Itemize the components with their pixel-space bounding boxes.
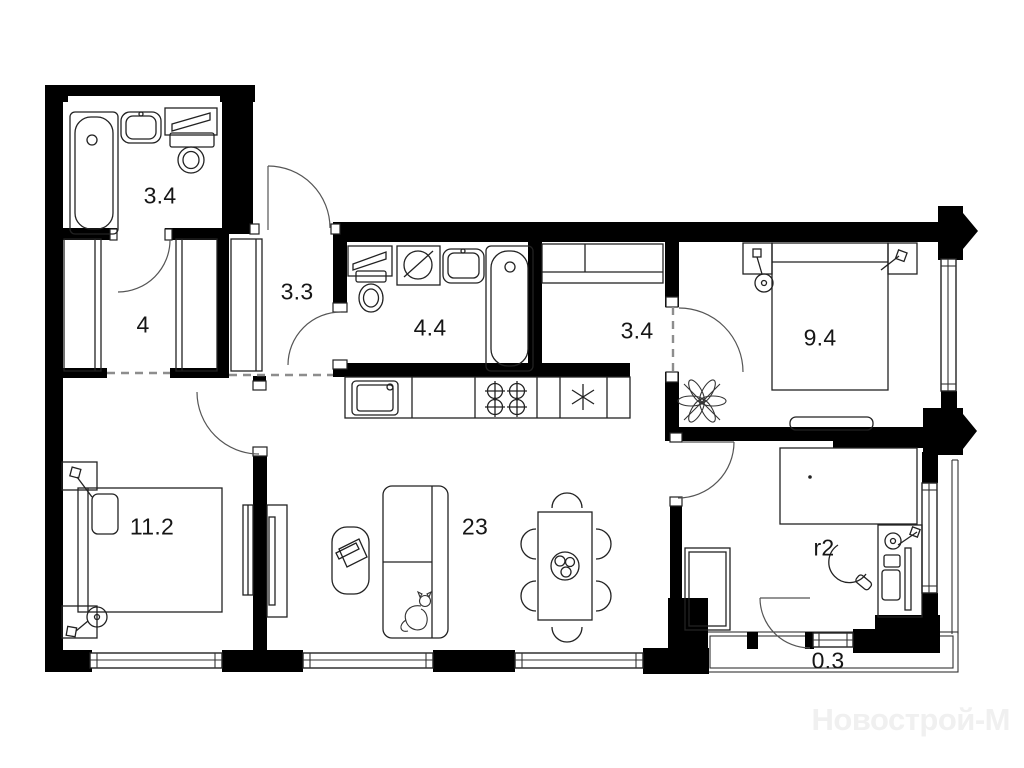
bathroom-2-fixtures bbox=[348, 246, 533, 371]
floor-plan-drawing bbox=[0, 0, 1024, 768]
fridge-snowflake-icon bbox=[572, 384, 594, 410]
floor-plan: 3.4 4 3.3 4.4 3.4 9.4 11.2 23 r2 0.3 Нов… bbox=[0, 0, 1024, 768]
room-label-bedroom-3: r2 bbox=[813, 535, 834, 562]
monitor bbox=[905, 548, 911, 610]
desk bbox=[878, 525, 922, 617]
room-label-balcony: 0.3 bbox=[812, 648, 845, 675]
corridor-closet bbox=[542, 244, 663, 283]
washing-machine bbox=[397, 246, 440, 285]
toilet bbox=[170, 133, 214, 173]
wall-lamp bbox=[753, 249, 773, 292]
room-label-bathroom-1: 3.4 bbox=[144, 183, 177, 210]
bed bbox=[78, 488, 222, 612]
window-bedroom-2 bbox=[90, 653, 222, 668]
nightstand bbox=[888, 243, 917, 274]
room-label-entry-hall: 3.3 bbox=[281, 279, 314, 306]
vent-niche bbox=[68, 96, 220, 105]
sink bbox=[121, 112, 161, 143]
window-bedroom-1 bbox=[941, 259, 956, 391]
dining-chair bbox=[521, 581, 536, 611]
dining-chair bbox=[596, 581, 611, 611]
room-label-bedroom-1: 9.4 bbox=[804, 325, 837, 352]
hall-wardrobe-left bbox=[64, 239, 101, 371]
door-bathroom-1 bbox=[118, 240, 170, 292]
window-bedroom-3 bbox=[922, 483, 937, 593]
door-balcony bbox=[760, 598, 810, 648]
window-living-2 bbox=[515, 653, 643, 668]
entry-door bbox=[268, 166, 330, 230]
bedroom-2-wardrobe bbox=[243, 505, 253, 595]
door-bedroom-1 bbox=[679, 308, 743, 372]
room-label-corridor: 3.4 bbox=[621, 318, 654, 345]
dining-chair bbox=[552, 627, 582, 642]
room-label-bedroom-2: 11.2 bbox=[130, 514, 174, 541]
plant bbox=[678, 378, 726, 425]
watermark: Новострой-М bbox=[812, 702, 1011, 738]
room-label-bathroom-2: 4.4 bbox=[414, 315, 447, 342]
kitchen-sink bbox=[352, 381, 398, 415]
bathtub bbox=[486, 246, 533, 371]
door-bedroom-3 bbox=[678, 442, 734, 498]
bedroom-1-furniture bbox=[678, 243, 917, 430]
dining-chair bbox=[596, 529, 611, 559]
dining-table bbox=[538, 512, 592, 620]
armchair bbox=[332, 527, 369, 594]
dining-chair bbox=[521, 529, 536, 559]
bathroom-1-fixtures bbox=[70, 108, 217, 234]
shelf bbox=[165, 108, 217, 135]
bed bbox=[780, 448, 917, 524]
door-bathroom-2 bbox=[288, 312, 341, 365]
sofa bbox=[383, 486, 448, 638]
sink bbox=[443, 249, 484, 283]
toilet bbox=[356, 271, 386, 312]
room-label-hallway: 4 bbox=[136, 312, 149, 339]
bedroom-2-furniture bbox=[62, 462, 222, 638]
door-bedroom-2 bbox=[197, 392, 259, 454]
dining-chair bbox=[552, 493, 582, 508]
bedroom-3-furniture bbox=[780, 448, 922, 617]
bathtub bbox=[70, 112, 118, 234]
tv-unit bbox=[267, 505, 287, 617]
kitchen bbox=[345, 377, 630, 418]
hall-wardrobe-right bbox=[176, 239, 217, 371]
window-balcony bbox=[813, 633, 853, 647]
window-living-1 bbox=[303, 653, 433, 668]
desk-chair bbox=[829, 545, 873, 591]
room-label-living-kitchen: 23 bbox=[462, 514, 488, 541]
living-room-furniture bbox=[267, 486, 611, 642]
stove bbox=[485, 381, 527, 417]
dining-set bbox=[521, 493, 611, 642]
entry-closet bbox=[231, 239, 262, 371]
bed bbox=[772, 243, 888, 390]
